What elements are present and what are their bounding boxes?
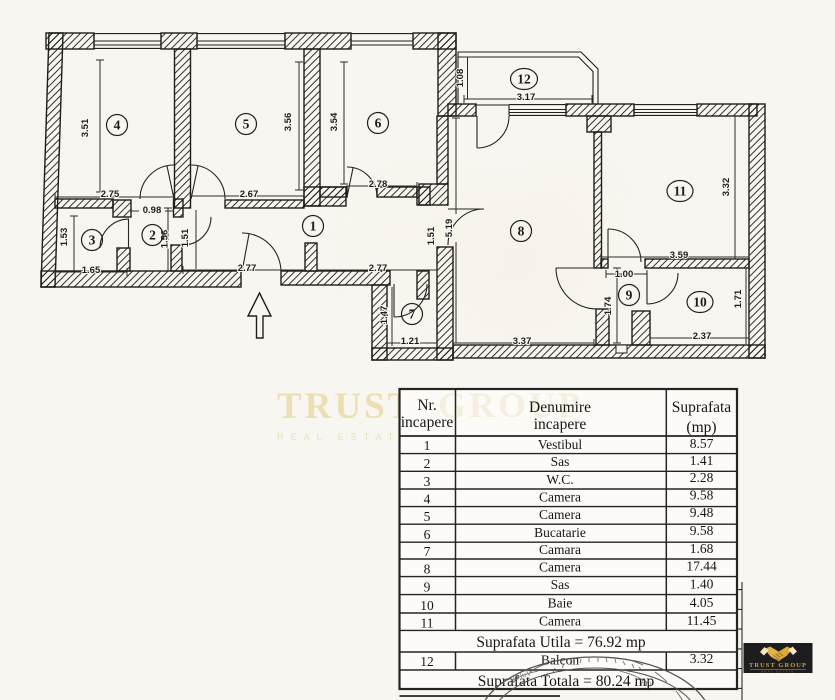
svg-text:1.00: 1.00	[615, 269, 634, 280]
svg-text:9: 9	[424, 580, 431, 595]
svg-text:3.59: 3.59	[670, 250, 689, 261]
svg-text:9: 9	[626, 288, 633, 303]
svg-text:1.51: 1.51	[426, 226, 437, 245]
svg-text:Sas: Sas	[551, 454, 570, 469]
svg-text:8: 8	[424, 562, 431, 577]
svg-text:4: 4	[424, 492, 431, 507]
svg-text:3.56: 3.56	[283, 113, 294, 132]
svg-text:3.54: 3.54	[329, 112, 340, 131]
svg-text:2: 2	[149, 228, 156, 243]
svg-text:1.65: 1.65	[82, 265, 101, 276]
svg-text:incapere: incapere	[534, 416, 587, 433]
svg-text:Bucatarie: Bucatarie	[534, 525, 586, 540]
svg-text:1.21: 1.21	[401, 336, 420, 347]
svg-text:3.32: 3.32	[690, 651, 714, 666]
svg-text:1.74: 1.74	[603, 296, 614, 315]
svg-text:(mp): (mp)	[686, 419, 716, 436]
svg-text:Sas: Sas	[551, 577, 570, 592]
svg-text:Camera: Camera	[539, 614, 581, 629]
svg-text:2.37: 2.37	[693, 331, 712, 342]
svg-text:6: 6	[375, 116, 382, 131]
svg-text:1.56: 1.56	[160, 230, 171, 249]
svg-text:10: 10	[693, 295, 707, 310]
svg-text:0.98: 0.98	[143, 205, 162, 216]
svg-text:1: 1	[424, 438, 431, 453]
svg-text:1.71: 1.71	[733, 289, 744, 308]
svg-text:6: 6	[424, 527, 431, 542]
svg-text:3: 3	[89, 233, 96, 248]
svg-text:Denumire: Denumire	[529, 399, 591, 416]
svg-text:W.C.: W.C.	[546, 472, 573, 487]
svg-text:2.78: 2.78	[369, 179, 388, 190]
svg-text:Camera: Camera	[539, 490, 581, 505]
svg-text:3.37: 3.37	[513, 336, 532, 347]
svg-text:11: 11	[674, 184, 687, 199]
svg-text:12: 12	[517, 72, 531, 87]
svg-text:4.05: 4.05	[690, 595, 714, 610]
svg-text:2.67: 2.67	[240, 189, 259, 200]
svg-text:2.77: 2.77	[369, 263, 388, 274]
svg-text:1.68: 1.68	[690, 541, 714, 556]
svg-text:1.41: 1.41	[690, 453, 714, 468]
svg-text:3.51: 3.51	[80, 118, 91, 137]
svg-text:Baie: Baie	[548, 596, 573, 611]
svg-text:5.19: 5.19	[444, 219, 455, 238]
svg-text:3.32: 3.32	[721, 178, 732, 197]
svg-text:Suprafata Utila = 76.92 mp: Suprafata Utila = 76.92 mp	[476, 634, 646, 651]
svg-text:9.48: 9.48	[690, 505, 714, 520]
svg-text:10: 10	[420, 598, 434, 613]
svg-text:Suprafata: Suprafata	[672, 399, 732, 416]
svg-text:9.58: 9.58	[690, 488, 714, 503]
svg-text:9.58: 9.58	[690, 523, 714, 538]
svg-text:1.51: 1.51	[180, 228, 191, 247]
svg-text:17.44: 17.44	[686, 559, 717, 574]
svg-text:5: 5	[243, 117, 250, 132]
svg-text:2.28: 2.28	[690, 470, 714, 485]
svg-text:12: 12	[420, 654, 434, 669]
svg-text:3.17: 3.17	[517, 92, 536, 103]
svg-text:7: 7	[409, 307, 416, 322]
svg-text:2.75: 2.75	[101, 189, 120, 200]
svg-text:Camera: Camera	[539, 560, 581, 575]
svg-text:3: 3	[424, 474, 431, 489]
svg-text:Camara: Camara	[539, 542, 581, 557]
svg-text:5: 5	[424, 509, 431, 524]
svg-text:2: 2	[424, 456, 431, 471]
svg-text:11.45: 11.45	[687, 613, 717, 628]
svg-text:8: 8	[518, 224, 525, 239]
svg-text:REAL ESTATE: REAL ESTATE	[277, 432, 413, 442]
svg-text:8.57: 8.57	[690, 436, 714, 451]
svg-text:TRUST GROUP: TRUST GROUP	[749, 662, 807, 669]
svg-text:1: 1	[310, 219, 317, 234]
svg-text:2.77: 2.77	[238, 263, 257, 274]
svg-text:1.40: 1.40	[690, 577, 714, 592]
svg-text:Camera: Camera	[539, 507, 581, 522]
svg-text:11: 11	[421, 616, 434, 631]
svg-text:1.47: 1.47	[379, 306, 390, 325]
svg-text:1.08: 1.08	[455, 69, 466, 88]
svg-text:REAL ESTATE: REAL ESTATE	[761, 669, 795, 673]
svg-text:1.53: 1.53	[59, 228, 70, 247]
svg-text:4: 4	[114, 118, 121, 133]
svg-text:7: 7	[424, 544, 431, 559]
svg-text:incapere: incapere	[401, 414, 454, 431]
svg-text:Vestibul: Vestibul	[538, 437, 583, 452]
svg-text:Nr.: Nr.	[417, 397, 436, 414]
